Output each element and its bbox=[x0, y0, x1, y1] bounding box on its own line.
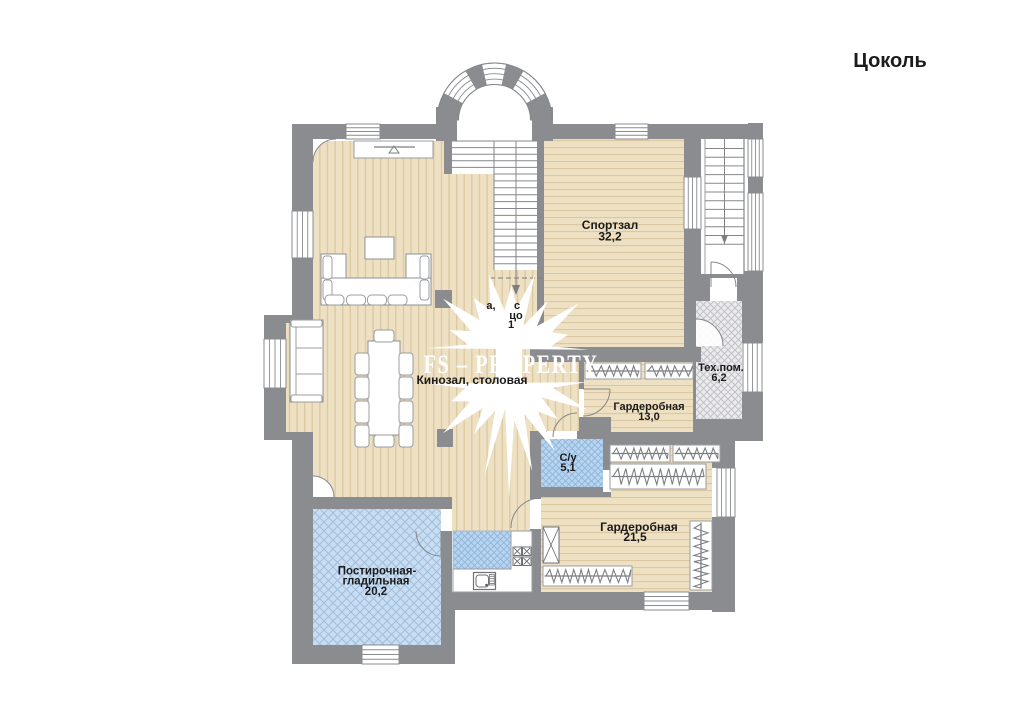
svg-text:Кинозал, столовая: Кинозал, столовая bbox=[416, 373, 527, 387]
svg-text:а,: а, bbox=[486, 300, 495, 312]
svg-text:21,5: 21,5 bbox=[623, 530, 647, 544]
svg-text:1: 1 bbox=[508, 319, 514, 331]
svg-text:Цоколь: Цоколь bbox=[853, 50, 927, 72]
svg-text:20,2: 20,2 bbox=[365, 586, 387, 598]
svg-text:32,2: 32,2 bbox=[598, 230, 622, 244]
svg-text:6,2: 6,2 bbox=[711, 372, 726, 384]
svg-text:5,1: 5,1 bbox=[560, 462, 575, 474]
svg-text:13,0: 13,0 bbox=[638, 411, 659, 423]
